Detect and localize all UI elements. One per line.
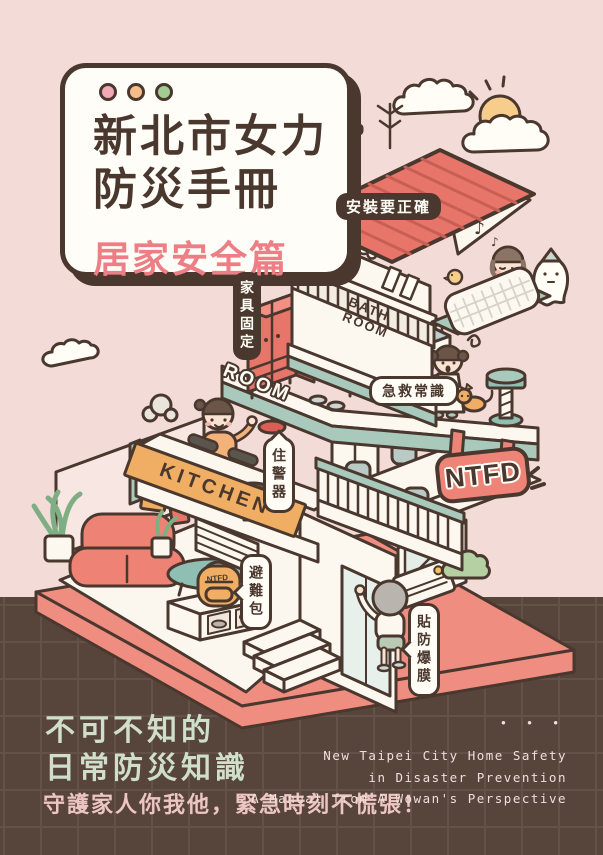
title-line-2: 防災手冊: [93, 164, 347, 217]
cat-tower: [487, 369, 525, 426]
rubber-duck-icon: [444, 270, 462, 284]
callout-film-label: 貼防爆膜: [416, 614, 432, 686]
slipper-icon: [328, 402, 344, 410]
title-card: 新北市女力 防災手冊 居家安全篇: [60, 63, 352, 277]
dot-pink-icon: [99, 83, 117, 101]
slipper-icon: [310, 396, 326, 404]
music-note-icon: ♪: [474, 219, 485, 239]
callout-install-correctly: 安裝要正確: [336, 193, 441, 220]
cloud-left-icon: [43, 340, 98, 366]
music-note-icon: ♪: [491, 235, 499, 249]
pointer: [350, 218, 360, 228]
footer-dots: • • •: [501, 715, 567, 730]
footer-english-line3: A Manual from A Wowan's Perspective: [251, 788, 567, 810]
ntfd-hanging-sign: NTFD: [434, 445, 533, 505]
footer-english-line2: in Disaster Prevention: [251, 767, 567, 789]
callout-go-bag: 避難包: [240, 554, 272, 630]
footer-english: New Taipei City Home Safety in Disaster …: [251, 745, 567, 810]
callout-alarm-label: 住警器: [271, 448, 287, 502]
title-line-1: 新北市女力: [93, 111, 347, 164]
cloud-top-icon: [394, 79, 473, 114]
footer-english-line1: New Taipei City Home Safety: [251, 745, 567, 767]
callout-first-aid: 急救常識: [369, 376, 459, 406]
callout-safety-film: 貼防爆膜: [408, 603, 440, 697]
poster: ♪ ♪ NTFD 新北市女力 防災手冊 居家安全篇 BATH ROOM ROOM…: [0, 0, 603, 855]
callout-smoke-alarm: 住警器: [263, 437, 295, 513]
callout-fix-furniture: 家具固定: [233, 272, 261, 360]
title-line-3: 居家安全篇: [93, 229, 347, 283]
footer-headline-2: 日常防災知識: [45, 743, 249, 787]
window-dots: [99, 83, 347, 101]
callout-install-label: 安裝要正確: [346, 199, 431, 216]
dot-orange-icon: [127, 83, 145, 101]
cloud-sun-icon: [463, 115, 548, 152]
footer: 不可不知的 日常防災知識 守護家人你我他，緊急時刻不慌張！ • • • New …: [0, 597, 603, 855]
smoke-puff-icon: [143, 395, 177, 421]
dot-green-icon: [155, 83, 173, 101]
